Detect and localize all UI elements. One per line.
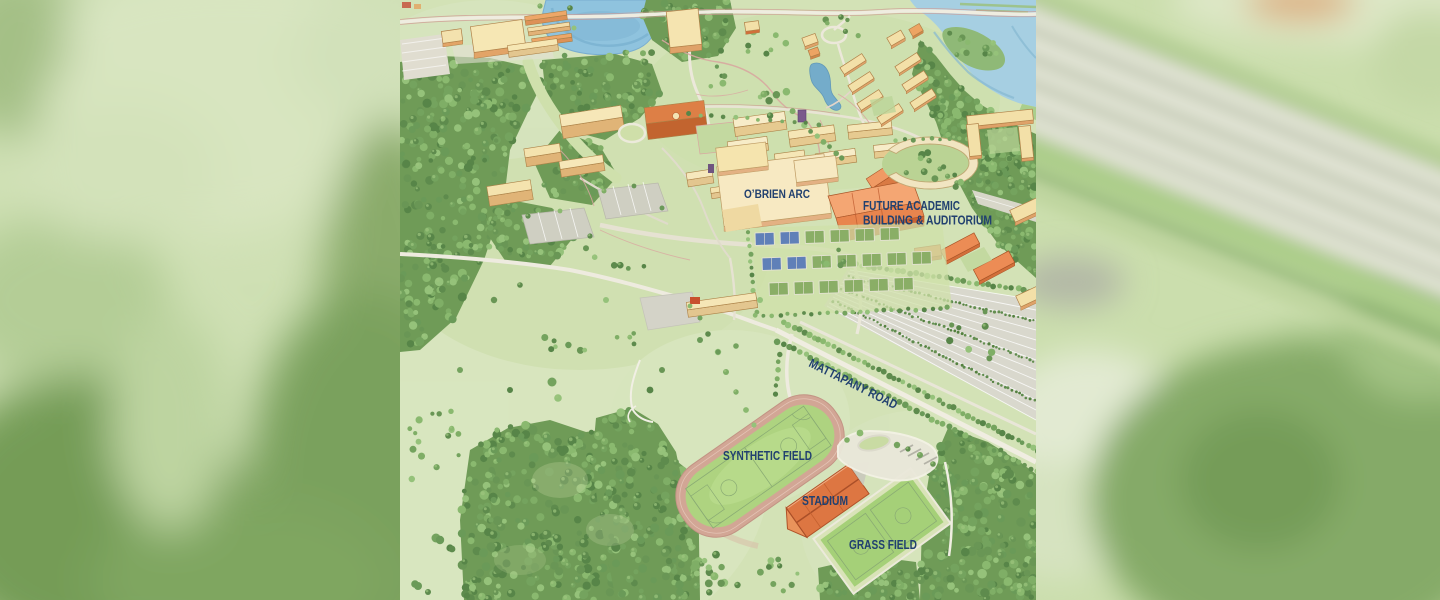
svg-text:SYNTHETIC FIELD: SYNTHETIC FIELD xyxy=(723,448,812,463)
svg-text:STADIUM: STADIUM xyxy=(802,493,848,508)
svg-text:O’BRIEN ARC: O’BRIEN ARC xyxy=(744,187,810,201)
svg-text:GRASS FIELD: GRASS FIELD xyxy=(849,537,917,552)
svg-text:FUTURE ACADEMIC: FUTURE ACADEMIC xyxy=(863,198,960,213)
svg-text:BUILDING & AUDITORIUM: BUILDING & AUDITORIUM xyxy=(863,213,992,228)
